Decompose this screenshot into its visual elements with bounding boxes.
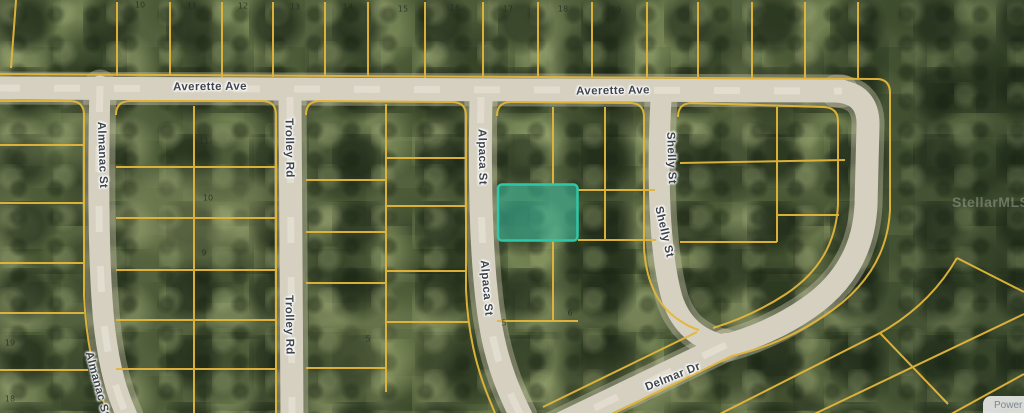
lot-number: 15 — [398, 5, 408, 14]
lot-number: 5 — [365, 335, 370, 344]
lot-number: 13 — [290, 3, 300, 12]
lot-number: 17 — [503, 5, 513, 14]
lot-number: 10 — [203, 194, 213, 203]
street-label-almanac-st-north: Almanac St — [95, 121, 109, 188]
parcel-map-svg — [0, 0, 1024, 413]
lot-number: 14 — [343, 3, 353, 12]
lot-number: 5 — [501, 319, 506, 328]
lot-number: 11 — [199, 137, 209, 146]
lot-number: 16 — [450, 4, 460, 13]
lot-number: 19 — [611, 6, 621, 15]
lot-number: 4 — [367, 285, 372, 294]
lot-number: 19 — [5, 339, 15, 348]
street-label-trolley-rd-south: Trolley Rd — [282, 295, 295, 355]
powered-by-text: Power — [994, 400, 1022, 411]
lot-number: 18 — [5, 395, 15, 404]
lot-number: 12 — [238, 2, 248, 11]
lot-number: 11 — [187, 2, 197, 11]
stellarmls-watermark: StellarMLS — [952, 194, 1024, 210]
street-label-averette-ave-west: Averette Ave — [173, 81, 247, 94]
street-label-alpaca-st-north: Alpaca St — [476, 129, 489, 185]
street-label-averette-ave-east: Averette Ave — [576, 84, 650, 97]
aerial-parcel-map[interactable]: Averette AveAverette AveAlmanac StAlmana… — [0, 0, 1024, 413]
powered-by-watermark: Power — [983, 396, 1024, 413]
roads — [0, 86, 868, 413]
highlighted-parcel[interactable] — [498, 185, 578, 241]
lot-number: 10 — [135, 1, 145, 10]
lot-number: 18 — [558, 5, 568, 14]
street-label-shelly-st-north: Shelly St — [664, 132, 678, 185]
lot-number: 9 — [201, 249, 206, 258]
lot-number: 6 — [567, 309, 572, 318]
street-label-trolley-rd-north: Trolley Rd — [282, 118, 295, 178]
